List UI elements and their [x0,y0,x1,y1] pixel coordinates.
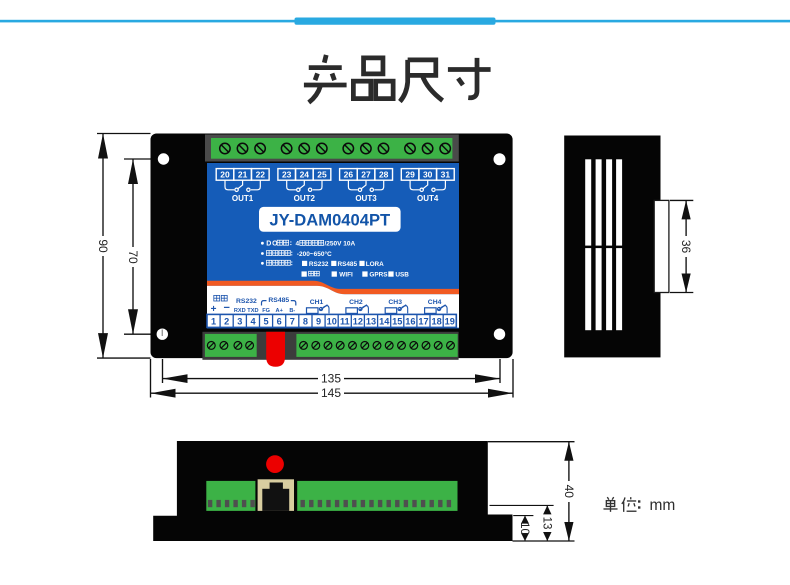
svg-text:OUT4: OUT4 [417,194,439,203]
svg-text:8: 8 [303,317,308,327]
svg-text:24: 24 [300,170,310,180]
svg-text:-200~650°C: -200~650°C [297,250,332,258]
svg-text:3: 3 [237,317,242,327]
svg-text:18: 18 [431,317,441,327]
svg-text:13: 13 [540,517,552,530]
svg-text:28: 28 [379,170,389,180]
svg-text:RS232: RS232 [236,298,257,305]
svg-text:36: 36 [679,240,693,254]
svg-text:135: 135 [321,372,341,386]
svg-text:USB: USB [395,272,409,279]
svg-text:WIFI: WIFI [339,272,353,279]
svg-text:26: 26 [344,170,354,180]
svg-text:31: 31 [441,170,451,180]
svg-text:A+: A+ [276,308,284,314]
svg-text:+: + [211,304,217,315]
svg-text:10: 10 [327,317,337,327]
svg-text:4: 4 [296,241,300,248]
svg-text:RS485: RS485 [268,297,289,304]
svg-text:70: 70 [126,250,140,264]
svg-text:145: 145 [321,386,341,400]
svg-text:OUT1: OUT1 [232,194,254,203]
svg-text:22: 22 [256,170,266,180]
svg-text:JY-DAM0404PT: JY-DAM0404PT [269,211,390,230]
svg-text:TXD: TXD [247,308,258,314]
svg-text:OUT3: OUT3 [355,194,377,203]
svg-text:16: 16 [405,317,415,327]
svg-text:29: 29 [405,170,415,180]
svg-text:CH4: CH4 [428,299,442,306]
svg-text:10: 10 [518,522,530,535]
svg-text:14: 14 [379,317,390,327]
svg-text:25: 25 [317,170,327,180]
svg-text:DO: DO [266,241,278,248]
svg-text:OUT2: OUT2 [294,194,316,203]
svg-text:B-: B- [289,308,295,314]
svg-text:23: 23 [282,170,292,180]
svg-text:40: 40 [562,485,576,499]
svg-text:1: 1 [211,317,216,327]
svg-text:RXD: RXD [234,308,246,314]
svg-text:90: 90 [96,239,110,253]
svg-text:mm: mm [650,497,676,514]
svg-text:CH2: CH2 [349,299,363,306]
svg-text:4: 4 [250,317,256,327]
svg-text:30: 30 [423,170,433,180]
svg-text:GPRS: GPRS [369,272,388,279]
svg-text:9: 9 [316,317,321,327]
svg-text:CH3: CH3 [388,299,402,306]
svg-text:15: 15 [392,317,402,327]
svg-text:11: 11 [340,317,350,327]
svg-text:17: 17 [418,317,428,327]
svg-text:20: 20 [220,170,230,180]
svg-text:LORA: LORA [366,261,384,268]
svg-text:19: 19 [445,317,455,327]
svg-text:2: 2 [224,317,229,327]
svg-text:5: 5 [264,317,269,327]
svg-text:FG: FG [262,308,270,314]
svg-text:/250V 10A: /250V 10A [325,241,356,248]
svg-text:13: 13 [366,317,376,327]
svg-text:CH1: CH1 [310,299,324,306]
svg-text:−: − [223,302,229,314]
svg-text:RS485: RS485 [338,261,358,268]
svg-text:21: 21 [238,170,248,180]
svg-text:RS232: RS232 [309,261,329,268]
svg-text:27: 27 [361,170,371,180]
svg-text:12: 12 [353,317,363,327]
svg-text:7: 7 [290,317,295,327]
svg-text:6: 6 [277,317,282,327]
